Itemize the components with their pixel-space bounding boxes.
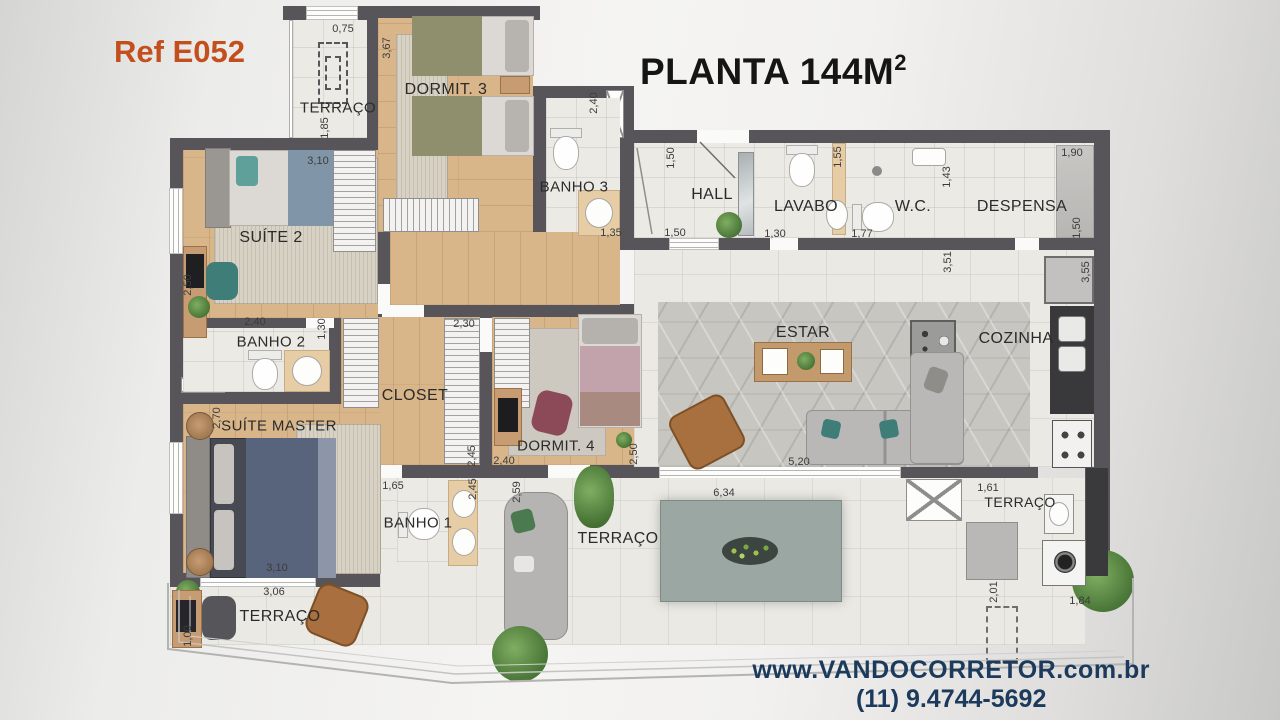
- sofa-pillow: [879, 419, 900, 440]
- dim: 1,65: [382, 480, 403, 492]
- room-label-dormit3: DORMIT. 3: [405, 81, 488, 99]
- bed-pillow: [236, 156, 258, 186]
- window: [169, 442, 183, 514]
- toilet: [252, 358, 278, 390]
- desk-chair: [202, 596, 236, 640]
- dim: 2,45: [466, 445, 478, 466]
- dim: 1,50: [665, 147, 677, 168]
- dim: 2,45: [467, 478, 479, 499]
- tray: [762, 348, 788, 375]
- dim: 3,51: [942, 251, 954, 272]
- dim: 2,50: [628, 443, 640, 464]
- floor-corridor: [390, 232, 620, 305]
- dim: 1,43: [941, 166, 953, 187]
- round-nightstand: [186, 412, 214, 440]
- dim: 5,20: [788, 456, 809, 468]
- room-label-lavabo: LAVABO: [774, 198, 838, 216]
- bed-pillow: [505, 20, 529, 72]
- bed-blanket: [412, 96, 482, 156]
- room-label-closet: CLOSET: [382, 387, 448, 405]
- dim: 1,00: [182, 625, 194, 646]
- shower-head: [872, 166, 882, 176]
- wardrobe: [444, 318, 480, 464]
- plan-title: PLANTA 144M2: [640, 50, 907, 93]
- room-label-suite2: SUÍTE 2: [239, 229, 302, 247]
- toilet: [789, 153, 815, 187]
- dim: 1,50: [664, 227, 685, 239]
- sink: [585, 198, 613, 228]
- sofa-pillow: [514, 556, 534, 572]
- dim: 1,35: [600, 227, 621, 239]
- window: [669, 238, 719, 250]
- dim: 1,90: [1061, 147, 1082, 159]
- reference-code: Ref E052: [114, 34, 245, 70]
- dim: 3,10: [307, 155, 328, 167]
- sofa-pillow: [820, 418, 841, 439]
- bed-blanket: [412, 16, 482, 76]
- room-label-estar: ESTAR: [776, 324, 830, 342]
- door-gap: [1015, 238, 1039, 250]
- tv: [498, 398, 518, 432]
- website-text: www.VANDOCORRETOR.com.br: [752, 656, 1150, 685]
- future-furniture-dashed: [325, 56, 341, 90]
- wardrobe: [343, 318, 379, 408]
- desk-chair: [206, 262, 238, 300]
- bed-headboard: [205, 148, 231, 228]
- sink: [912, 148, 946, 166]
- dim: 2,59: [511, 481, 523, 502]
- bed-pillow: [505, 100, 529, 152]
- watermark: www.VANDOCORRETOR.com.br (11) 9.4744-569…: [752, 656, 1150, 714]
- dim: 6,34: [713, 487, 734, 499]
- window: [306, 6, 358, 20]
- bed-pillow: [582, 318, 638, 344]
- toilet-tank: [852, 204, 862, 230]
- wall: [533, 86, 547, 250]
- wardrobe: [333, 150, 376, 252]
- dim: 1,50: [1071, 217, 1083, 238]
- sink: [292, 356, 322, 386]
- washer-door: [1054, 551, 1076, 573]
- dim: 3,06: [263, 586, 284, 598]
- plant: [716, 212, 742, 238]
- room-label-wc: W.C.: [895, 198, 931, 216]
- dim: 2,40: [244, 316, 265, 328]
- room-label-suite-master: SUÍTE MASTER: [221, 418, 337, 435]
- room-label-banho2: BANHO 2: [237, 334, 306, 351]
- railing: [289, 20, 293, 138]
- dim: 3,67: [381, 37, 393, 58]
- round-nightstand: [186, 548, 214, 576]
- dim: 1,85: [319, 117, 331, 138]
- dim: 2,30: [453, 318, 474, 330]
- room-label-banho1: BANHO 1: [384, 515, 453, 532]
- plant: [797, 352, 815, 370]
- dim: 1,61: [977, 482, 998, 494]
- dim: 1,55: [832, 146, 844, 167]
- wardrobe: [383, 198, 479, 232]
- dim: 3,55: [1080, 261, 1092, 282]
- room-label-dormit4: DORMIT. 4: [517, 438, 595, 455]
- door-gap: [480, 318, 492, 352]
- toilet: [553, 136, 579, 170]
- dim: 2,40: [493, 455, 514, 467]
- room-label-terraco-left: TERRAÇO: [239, 608, 320, 626]
- room-label-terraco-main: TERRAÇO: [577, 530, 658, 548]
- room-label-banho3: BANHO 3: [540, 179, 609, 196]
- room-label-terraco-servico: TERRAÇO: [984, 494, 1055, 510]
- dim: 1,30: [764, 228, 785, 240]
- plant: [492, 626, 548, 682]
- elevator-shaft: [906, 479, 962, 521]
- door-gap: [697, 130, 749, 143]
- window: [169, 188, 183, 254]
- bed-blanket: [580, 392, 640, 426]
- room-label-despensa: DESPENSA: [977, 198, 1067, 216]
- plan-title-superscript: 2: [894, 50, 907, 75]
- nightstand: [500, 76, 530, 94]
- bed-pillow: [214, 510, 234, 570]
- tray: [820, 349, 844, 374]
- dim: 1,84: [1069, 595, 1090, 607]
- wall: [1094, 130, 1110, 250]
- dim: 1,77: [851, 228, 872, 240]
- dim: 2,01: [988, 581, 1000, 602]
- dim: 0,75: [332, 23, 353, 35]
- service-table: [966, 522, 1018, 580]
- phone-text: (11) 9.4744-5692: [752, 685, 1150, 714]
- utility-niche: [1086, 468, 1108, 576]
- kitchen-sink: [1058, 316, 1086, 342]
- plan-title-text: PLANTA 144M: [640, 51, 894, 92]
- dim: 1,30: [316, 318, 328, 339]
- dim: 2,70: [211, 407, 223, 428]
- bed-pillow: [214, 444, 234, 504]
- stove: [1052, 420, 1092, 468]
- plant: [574, 466, 614, 528]
- bed-blanket: [580, 346, 640, 392]
- dim: 2,40: [588, 92, 600, 113]
- plant: [188, 296, 210, 318]
- centerpiece: [722, 537, 778, 565]
- wall: [183, 392, 341, 404]
- kitchen-sink: [1058, 346, 1086, 372]
- dim: 2,50: [182, 274, 194, 295]
- dim: 3,10: [266, 562, 287, 574]
- sink: [452, 528, 476, 556]
- room-label-terraco-top: TERRAÇO: [300, 100, 376, 117]
- floor-plan: TERRAÇO DORMIT. 3 BANHO 3 HALL LAVABO W.…: [0, 0, 1280, 720]
- wall: [1094, 248, 1110, 480]
- room-label-hall: HALL: [691, 186, 733, 204]
- room-label-cozinha: COZINHA: [979, 330, 1054, 348]
- bed-throw: [318, 438, 336, 578]
